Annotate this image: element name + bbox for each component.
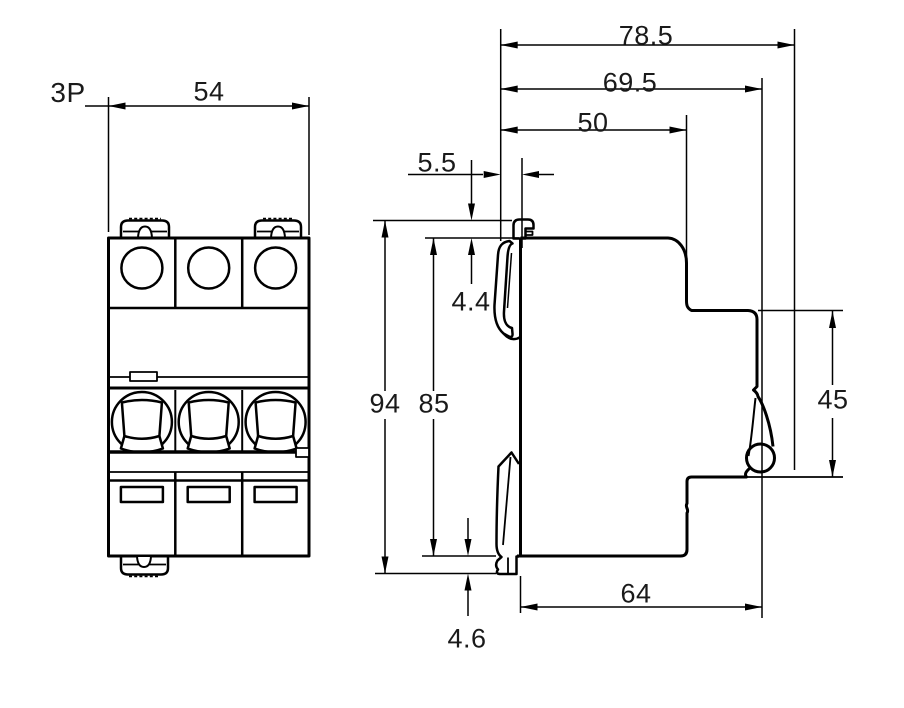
dim-label-overall-depth-78-5: 78.5 — [619, 23, 674, 50]
dim-label-front-height-45: 45 — [817, 387, 848, 414]
dim-label-lower-depth-64: 64 — [620, 581, 651, 608]
front-label-window — [130, 372, 157, 381]
front-bottom-clip-tab — [121, 556, 168, 576]
dim-label-clip-protrusion-5-5: 5.5 — [417, 150, 456, 177]
front-rating-window-1 — [121, 487, 163, 502]
mcb-dimension-drawing: 3P 54 78.5 69.5 50 5.5 4.4 94 85 45 64 4… — [0, 0, 904, 708]
front-rating-window-3 — [255, 487, 297, 502]
terminal-screw-1 — [121, 248, 162, 289]
front-face-lines — [109, 372, 310, 388]
din-clip-upper — [494, 241, 520, 339]
front-center-band — [109, 448, 310, 481]
front-top-clip-tabs — [121, 219, 301, 238]
front-toggle-area — [112, 390, 306, 452]
dim-label-width-54: 54 — [193, 79, 224, 106]
din-clip-top-hook — [514, 220, 534, 239]
front-rating-window-2 — [188, 487, 230, 502]
dim-label-body-height-85: 85 — [418, 391, 449, 418]
front-lower-section — [121, 472, 297, 556]
front-pole-count-label: 3P — [50, 79, 85, 107]
front-width-dimension — [85, 97, 309, 235]
din-clip-lower — [496, 453, 519, 575]
toggle-handle-1 — [121, 400, 163, 452]
dim-label-overall-height-94: 94 — [369, 391, 400, 418]
terminal-screw-3 — [255, 248, 296, 289]
toggle-handle-2 — [188, 400, 230, 452]
dim-label-top-offset-4-4: 4.4 — [451, 289, 490, 316]
side-body-profile — [517, 238, 775, 556]
front-body-outline — [109, 238, 310, 556]
front-terminal-block — [109, 238, 310, 308]
dim-label-upper-depth-50: 50 — [577, 110, 608, 137]
toggle-handle-3 — [255, 400, 297, 452]
terminal-screw-2 — [188, 248, 229, 289]
technical-drawing-svg — [0, 0, 904, 708]
dim-label-bottom-offset-4-6: 4.6 — [447, 626, 486, 653]
front-band-notch — [296, 448, 309, 457]
dim-label-depth-to-clip-69-5: 69.5 — [603, 70, 658, 97]
front-view — [85, 97, 309, 576]
